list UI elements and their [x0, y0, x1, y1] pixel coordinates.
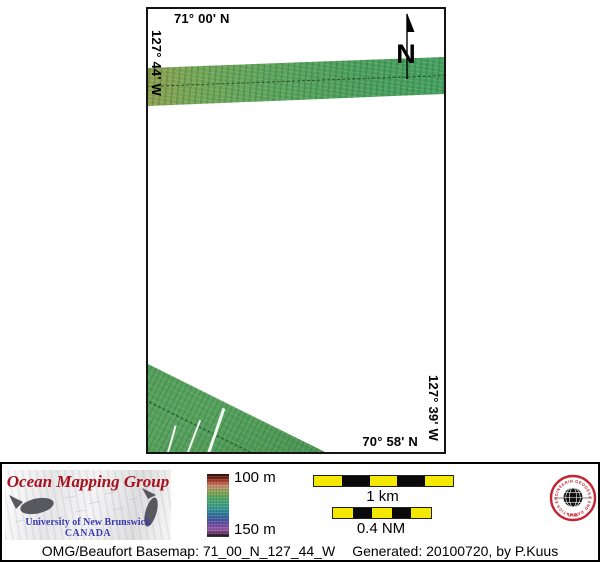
omg-logo-title: Ocean Mapping Group	[5, 472, 171, 492]
scalebar-segment	[353, 508, 373, 518]
scalebar-nm-label: 0.4 NM	[332, 520, 430, 537]
legend-panel: Ocean Mapping Group University of New Br…	[0, 462, 600, 562]
scalebar-segment	[314, 476, 342, 486]
basemap-frame: 71° 00' N 127° 44' W 127° 39' W 70° 58' …	[146, 7, 446, 454]
scalebar-segment	[333, 508, 353, 518]
footer-caption: OMG/Beaufort Basemap: 71_00_N_127_44_WGe…	[2, 543, 598, 559]
scalebar-segment	[372, 508, 392, 518]
scalebar-km	[313, 475, 454, 487]
basemap-title: OMG/Beaufort Basemap: 71_00_N_127_44_W	[42, 543, 335, 559]
latitude-label-top: 71° 00' N	[174, 11, 230, 26]
seal-bottom-text: UNB	[568, 513, 579, 518]
colorbar-top-label: 100 m	[234, 469, 276, 486]
colorbar-bottom-label: 150 m	[234, 521, 276, 538]
scalebar-segment	[397, 476, 425, 486]
latitude-label-bottom: 70° 58' N	[362, 434, 418, 449]
unb-geodesy-seal-icon: GEODESY AND GEOMATICS ENGINEERING UNB	[548, 473, 598, 523]
omg-logo: Ocean Mapping Group University of New Br…	[5, 470, 171, 540]
scalebar-km-label: 1 km	[313, 488, 452, 505]
map-canvas: 71° 00' N 127° 44' W 127° 39' W 70° 58' …	[148, 9, 444, 452]
scalebar-nm	[332, 507, 432, 519]
longitude-label-left: 127° 44' W	[149, 30, 164, 96]
north-arrow-icon: N	[393, 11, 421, 83]
omg-logo-country: CANADA	[5, 528, 171, 539]
scalebar-segment	[411, 508, 431, 518]
scalebar-segment	[342, 476, 370, 486]
north-label: N	[396, 39, 416, 69]
scalebar-segment	[370, 476, 398, 486]
omg-logo-institution: University of New Brunswick	[5, 517, 171, 528]
depth-colorbar	[207, 474, 229, 537]
longitude-label-right: 127° 39' W	[426, 375, 441, 441]
generated-info: Generated: 20100720, by P.Kuus	[352, 543, 558, 559]
scalebar-segment	[392, 508, 412, 518]
scalebar-segment	[425, 476, 453, 486]
